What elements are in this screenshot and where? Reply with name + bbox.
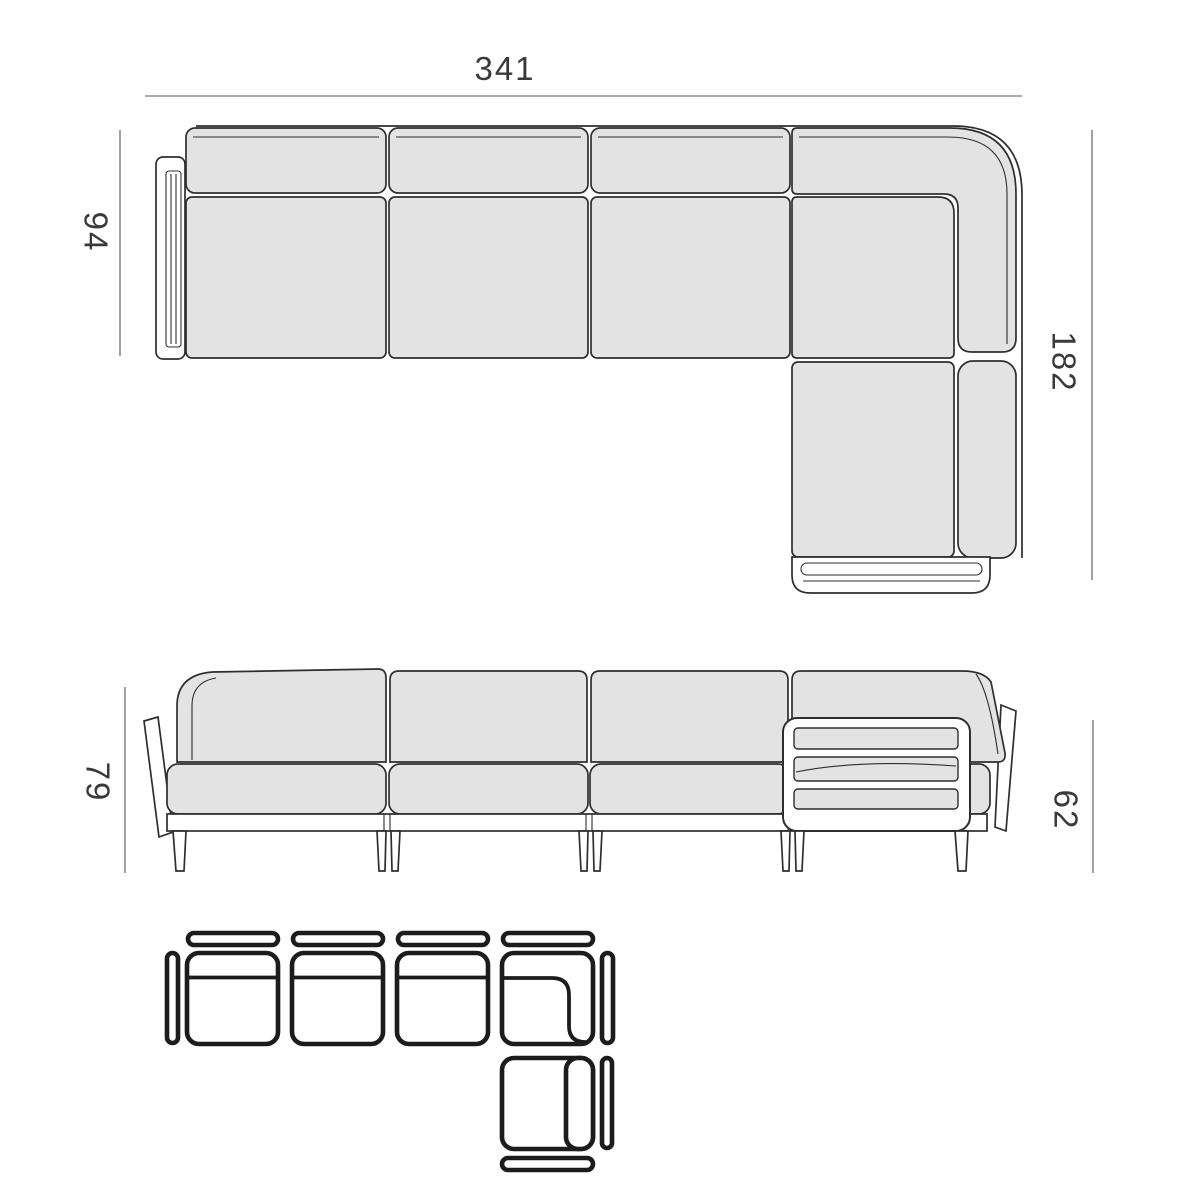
- armless-module-icon: [292, 953, 383, 1044]
- armless-module-icon: [187, 953, 278, 1044]
- seat-cushions-plan: [186, 197, 1016, 558]
- back-cushion-1-front: [177, 669, 386, 762]
- end-module-icon: [502, 1058, 593, 1149]
- back-panel-icon: [398, 933, 488, 945]
- seat-cushion-1: [186, 197, 386, 358]
- armless-module-icon: [397, 953, 488, 1044]
- dim-label-chaise-depth: 182: [1045, 331, 1082, 392]
- dim-label-sofa-depth: 94: [77, 212, 114, 253]
- side-panel-icon: [167, 953, 178, 1043]
- module-schematic: [167, 933, 613, 1170]
- back-cushion-2: [389, 128, 588, 193]
- dim-label-arm-height: 62: [1047, 790, 1084, 831]
- side-panel-icon: [602, 953, 613, 1043]
- chaise-armrest-front: [783, 718, 970, 831]
- left-armrest-plan: [156, 157, 185, 359]
- back-panel-icon: [503, 933, 593, 945]
- top-view-plan: 341 94 182: [77, 50, 1092, 593]
- corner-module-icon: [502, 953, 593, 1044]
- back-cushion-2-front: [390, 671, 587, 762]
- sofa-legs: [173, 831, 968, 871]
- back-cushion-3: [591, 128, 790, 193]
- seat-cushion-3: [591, 197, 790, 358]
- back-cushion-1: [186, 128, 386, 193]
- side-panel-icon: [602, 1058, 612, 1148]
- sofa-dimension-drawing: 341 94 182: [0, 0, 1200, 1200]
- seat-cushion-2: [389, 197, 588, 358]
- dim-label-total-width: 341: [474, 50, 535, 87]
- corner-seat-cushion: [792, 197, 954, 358]
- front-view-elevation: 79 62: [79, 669, 1093, 873]
- seat-cushion-3-front: [590, 764, 789, 814]
- seat-cushion-2-front: [389, 764, 588, 814]
- back-panel-icon: [293, 933, 383, 945]
- chaise-seat-cushion: [792, 362, 954, 557]
- chaise-back-cushion: [958, 361, 1016, 558]
- back-panel-icon: [502, 1158, 593, 1170]
- dimension-drawing-page: 341 94 182: [0, 0, 1200, 1200]
- seat-cushion-1-front: [167, 764, 386, 814]
- dim-label-back-height: 79: [79, 762, 116, 803]
- chaise-armrest-plan: [792, 557, 990, 593]
- back-panel-icon: [188, 933, 278, 945]
- back-cushion-3-front: [591, 671, 788, 762]
